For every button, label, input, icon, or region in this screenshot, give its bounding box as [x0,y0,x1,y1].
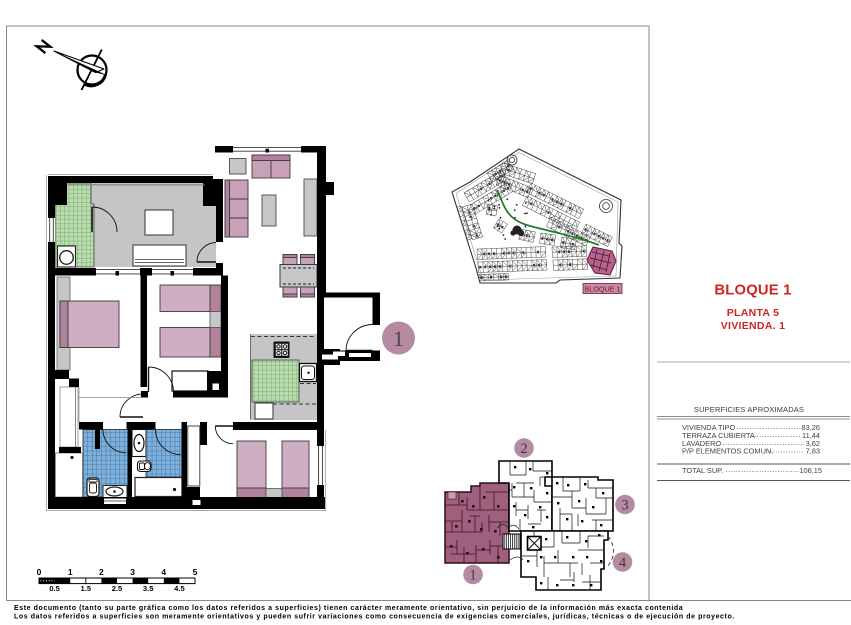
svg-text:4: 4 [161,567,166,577]
svg-text:BLOQUE 1: BLOQUE 1 [585,285,621,294]
svg-text:1: 1 [68,567,73,577]
svg-text:4.5: 4.5 [174,584,185,593]
svg-text:Este documento (tanto su parte: Este documento (tanto su parte gráfica c… [14,605,683,612]
svg-text:TOTAL SUP.: TOTAL SUP. [682,466,723,475]
svg-text:2.5: 2.5 [112,584,123,593]
svg-text:3: 3 [621,498,628,514]
svg-text:BLOQUE 1: BLOQUE 1 [714,283,791,299]
svg-text:106,15: 106,15 [799,466,822,475]
svg-text:P/P ELEMENTOS COMUN.: P/P ELEMENTOS COMUN. [682,447,773,456]
svg-text:3.5: 3.5 [143,584,154,593]
svg-text:4: 4 [619,555,627,571]
svg-text:5: 5 [193,567,198,577]
svg-text:1: 1 [393,326,404,351]
svg-text:2: 2 [520,441,527,457]
svg-text:7,83: 7,83 [806,447,820,456]
svg-text:PLANTA 5: PLANTA 5 [727,307,780,319]
svg-text:0: 0 [37,567,42,577]
svg-text:SUPERFICIES APROXIMADAS: SUPERFICIES APROXIMADAS [694,405,804,414]
svg-text:Los datos referidos a superfic: Los datos referidos a superficies son me… [14,614,735,621]
svg-text:3: 3 [130,567,135,577]
svg-text:1.5: 1.5 [81,584,92,593]
svg-text:VIVIENDA. 1: VIVIENDA. 1 [721,320,786,332]
svg-text:0.5: 0.5 [49,584,60,593]
svg-text:1: 1 [469,568,476,584]
svg-text:2: 2 [99,567,104,577]
